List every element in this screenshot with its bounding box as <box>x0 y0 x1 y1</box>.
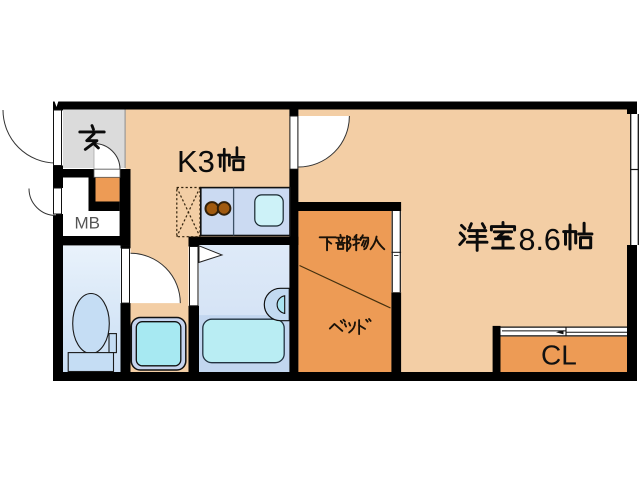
svg-text:8.6: 8.6 <box>519 223 561 257</box>
svg-text:K3: K3 <box>177 144 215 179</box>
svg-text:CL: CL <box>541 340 577 371</box>
svg-text:MB: MB <box>75 214 101 233</box>
